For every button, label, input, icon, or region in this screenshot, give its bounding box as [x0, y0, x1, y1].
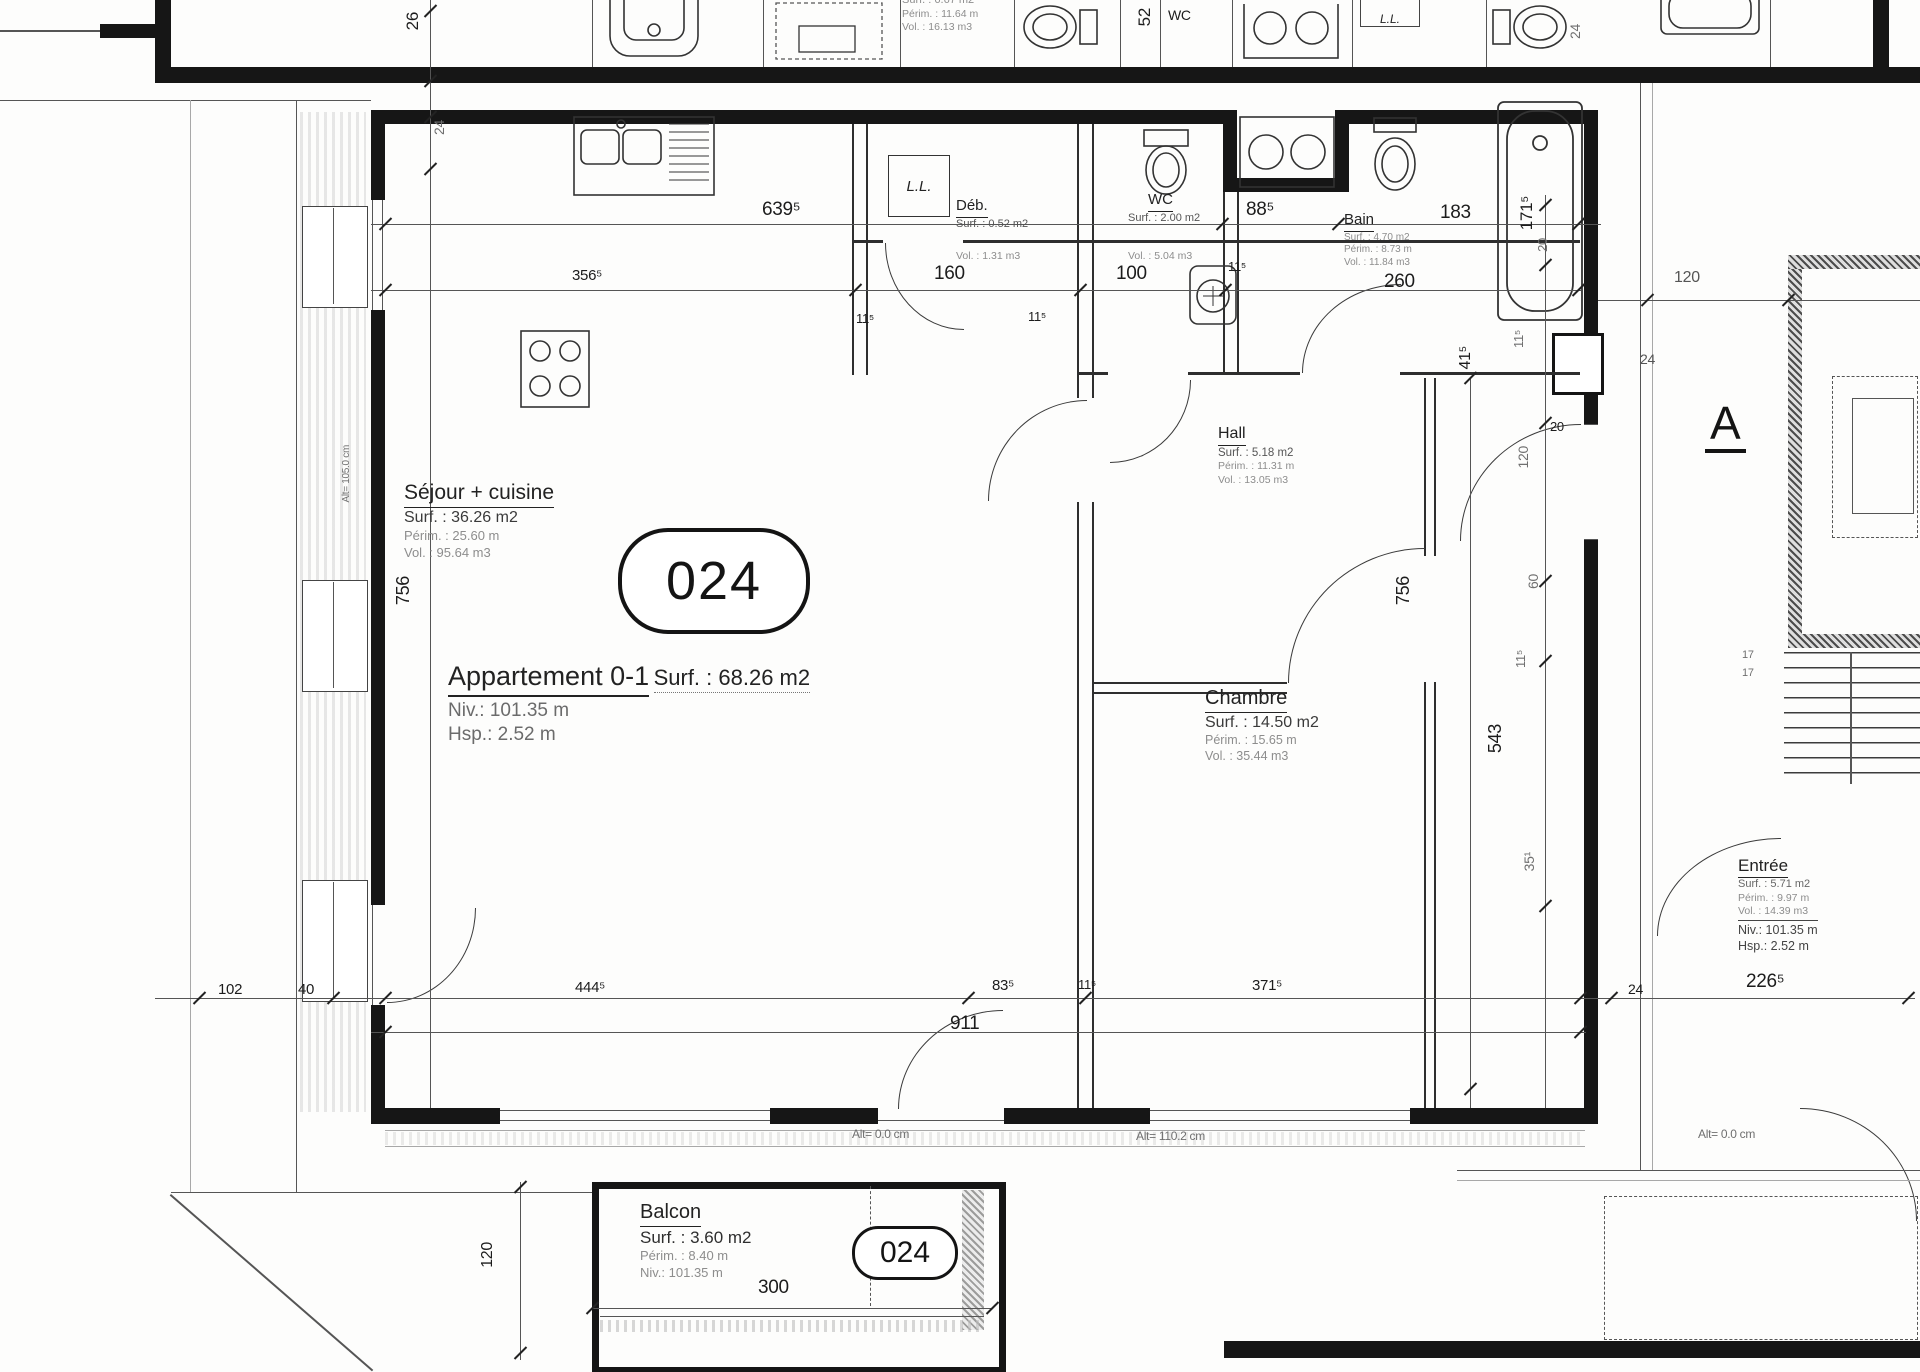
washing-machine-icon: L.L.: [888, 155, 950, 217]
room-perimeter: Périm. : 8.73 m: [1344, 244, 1412, 257]
room-name: Hall: [1218, 424, 1246, 446]
dim-label: 639⁵: [762, 200, 800, 219]
apartment-badge: 024: [618, 528, 810, 634]
dim-line: [1545, 195, 1546, 1108]
dim-label: 160: [934, 264, 965, 283]
window-line: [333, 882, 334, 998]
dim-label: 88⁵: [1246, 200, 1274, 219]
dim-label: 35¹: [1522, 852, 1536, 871]
window-frame: [500, 1120, 770, 1121]
room-perimeter: Périm. : 9.97 m: [1738, 892, 1818, 905]
hatched-wall: [1788, 634, 1920, 648]
corridor-wall: [155, 67, 1920, 83]
room-surface: Surf. : 3.60 m2: [640, 1227, 752, 1248]
facade-line: [190, 100, 191, 1192]
room-level: Niv.: 101.35 m: [1738, 923, 1818, 939]
window-frame: [500, 1110, 770, 1111]
room-label-deb-volume: Vol. : 1.31 m3: [956, 250, 1020, 263]
room-perimeter: Périm. : 11.64 m: [902, 8, 978, 21]
dim-label: 102: [218, 982, 242, 997]
room-surface: Surf. : 4.70 m2: [1344, 232, 1412, 245]
wall-segment: [100, 24, 158, 38]
room-label-neighbor: Surf. : 6.67 m2 Périm. : 11.64 m Vol. : …: [902, 0, 978, 34]
room-perimeter: Périm. : 25.60 m: [404, 528, 554, 544]
room-name: Entrée: [1738, 855, 1788, 878]
room-perimeter: Périm. : 15.65 m: [1205, 733, 1319, 749]
dim-label: 543: [1486, 724, 1504, 753]
room-label-deb: Déb. Surf. : 0.52 m2: [956, 196, 1028, 232]
sill-line: [385, 1146, 1585, 1147]
stair-count-label: 17: [1742, 668, 1754, 679]
dim-label: 756: [1394, 576, 1412, 605]
partition-sejour-hall: [1077, 124, 1079, 1108]
facade-diagonal-line: [170, 1194, 373, 1371]
room-name: WC: [1148, 191, 1173, 212]
dim-label: 371⁵: [1252, 978, 1282, 993]
sill-height-label: Alt= 0.0 cm: [852, 1128, 909, 1140]
door-arc-left-window: [387, 908, 476, 1003]
room-label-wc-volume: Vol. : 5.04 m3: [1128, 250, 1192, 263]
partition: [592, 0, 593, 67]
room-name: Bain: [1344, 211, 1374, 232]
dim-label: 24: [1568, 24, 1582, 39]
partition-hall-chambre: [1092, 682, 1287, 684]
wc-top-label: WC: [1168, 8, 1191, 22]
door-arc-chambre: [1288, 548, 1425, 683]
dim-label: 41⁵: [1458, 346, 1474, 370]
balcony-badge: 024: [852, 1226, 958, 1280]
door-opening: [371, 905, 385, 1005]
room-volume: Vol. : 11.84 m3: [1344, 257, 1412, 270]
duct-box: [1552, 333, 1604, 395]
dim-label: 24: [1640, 352, 1655, 366]
facade-line: [0, 100, 371, 101]
room-perimeter: Périm. : 11.31 m: [1218, 460, 1294, 473]
stove-icon: [520, 330, 590, 408]
sill-line: [385, 1130, 1585, 1131]
sill-height-label: Alt= 110.2 cm: [1136, 1130, 1205, 1142]
bathtub-icon: [1660, 0, 1760, 36]
partition: [1770, 0, 1771, 67]
window-frame: [878, 1120, 1004, 1121]
room-name: Séjour + cuisine: [404, 480, 554, 508]
corridor-line: [1457, 1170, 1920, 1171]
door-arc-deb: [885, 243, 964, 330]
double-sink-icon: [1239, 116, 1335, 188]
stair-rail: [1850, 652, 1852, 784]
room-surface: Surf. : 14.50 m2: [1205, 713, 1319, 733]
room-label-chambre: Chambre Surf. : 14.50 m2 Périm. : 15.65 …: [1205, 686, 1319, 764]
dim-label: 356⁵: [572, 268, 602, 283]
room-surface: Surf. : 0.52 m2: [956, 218, 1028, 232]
dim-label: 20: [1536, 238, 1549, 252]
door-arc-wc: [1110, 380, 1191, 463]
balcony-door-opening: [878, 1108, 1004, 1124]
window-line: [333, 208, 334, 304]
room-name: Balcon: [640, 1200, 701, 1227]
dim-label: 756: [394, 576, 412, 605]
apartment-top-wall: [371, 110, 1223, 124]
facade-line: [0, 30, 112, 32]
corridor-line: [1457, 1180, 1920, 1181]
dim-label: 11⁵: [1514, 650, 1527, 668]
room-label-wc: WC Surf. : 2.00 m2: [1148, 190, 1200, 226]
balcony-number: 024: [880, 1236, 930, 1270]
partition: [1120, 0, 1121, 67]
partition: [866, 124, 868, 375]
room-label-sejour: Séjour + cuisine Surf. : 36.26 m2 Périm.…: [404, 480, 554, 561]
facade-line: [171, 1192, 592, 1193]
toilet-icon: [1138, 128, 1194, 198]
door-opening: [1108, 371, 1188, 376]
corridor-line: [1640, 83, 1641, 1170]
dim-label: 100: [1116, 264, 1147, 283]
door-arc-entrance: [1460, 424, 1581, 541]
room-surface: Surf. : 5.71 m2: [1738, 878, 1818, 892]
dim-line: [520, 1182, 521, 1360]
dim-label: 444⁵: [575, 980, 605, 995]
partition: [1232, 0, 1233, 67]
room-volume: Vol. : 35.44 m3: [1205, 749, 1319, 765]
dim-label: 260: [1384, 272, 1415, 291]
dim-label: 120: [1516, 446, 1530, 468]
dim-label: 24: [432, 120, 446, 135]
double-sink-icon: [1243, 4, 1339, 60]
dim-label: 171⁵: [1518, 196, 1535, 230]
dim-label: 52: [1136, 8, 1153, 26]
washing-machine-icon: L.L.: [1360, 0, 1420, 27]
vanity-counter-icon: [775, 2, 883, 62]
partition: [1014, 0, 1015, 67]
dim-line: [1470, 378, 1471, 1108]
dim-label: 120: [1674, 270, 1700, 286]
sill-height-label: Alt= 105.0 cm: [342, 445, 352, 503]
toilet-icon: [1490, 2, 1568, 52]
entrance-door-opening: [1584, 424, 1598, 540]
stair-count-label: 17: [1742, 650, 1754, 661]
facade-line: [296, 100, 297, 1192]
room-surface: Surf. : 5.18 m2: [1218, 446, 1294, 460]
dim-label: 24: [1628, 982, 1643, 996]
dim-label: 300: [758, 1278, 789, 1297]
window-frame: [1150, 1120, 1410, 1121]
apartment-label: Appartement 0-1 Surf. : 68.26 m2 Niv.: 1…: [448, 660, 810, 746]
window-frame: [372, 200, 373, 310]
apartment-number: 024: [666, 550, 762, 612]
toilet-icon: [1022, 2, 1100, 52]
dim-label: 11⁵: [1028, 310, 1046, 323]
washing-machine-label: L.L.: [906, 178, 931, 195]
hatched-wall: [1788, 269, 1802, 648]
room-name: Chambre: [1205, 686, 1287, 713]
room-perimeter: Périm. : 8.40 m: [640, 1248, 752, 1264]
room-volume: Vol. : 16.13 m3: [902, 21, 978, 34]
dim-label: 83⁵: [992, 978, 1014, 993]
dim-label: 11⁵: [856, 312, 874, 325]
floor-plan: L.L.: [0, 0, 1920, 1372]
partition: [1486, 0, 1487, 67]
partition: [900, 0, 901, 67]
dim-label: 60: [1526, 574, 1540, 589]
bathtub-icon: [600, 0, 708, 66]
door-arc-sejour-hall: [988, 400, 1087, 501]
room-surface: Surf. : 6.67 m2: [902, 0, 978, 8]
lift-cabin: [1852, 398, 1914, 514]
sill-height-label: Alt= 0.0 cm: [1698, 1128, 1755, 1140]
washing-machine-label: L.L.: [1380, 12, 1400, 26]
partition-sejour-hall: [1092, 124, 1094, 1108]
room-volume: Vol. : 14.39 m3: [1738, 905, 1818, 921]
room-surface: Surf. : 2.00 m2: [1128, 212, 1200, 226]
room-level: Niv.: 101.35 m: [640, 1265, 752, 1281]
window: [302, 206, 368, 308]
dim-label: 11⁵: [1512, 330, 1525, 348]
dim-label: 11⁵: [1228, 260, 1246, 273]
room-height: Hsp.: 2.52 m: [1738, 939, 1818, 955]
apartment-right-wall: [1584, 110, 1598, 1124]
window-frame: [372, 905, 373, 1005]
room-label-balcon: Balcon Surf. : 3.60 m2 Périm. : 8.40 m N…: [640, 1200, 752, 1281]
room-name: Déb.: [956, 197, 988, 218]
partition: [763, 0, 764, 67]
balcony-sill-line: [600, 1316, 984, 1317]
dim-line: [1160, 0, 1161, 67]
terrace-outline: [1604, 1196, 1918, 1340]
dim-label: 26: [404, 12, 421, 30]
door-arc-bain: [1302, 284, 1401, 373]
balcony-sill-texture: [600, 1320, 984, 1332]
dim-label: 20: [1550, 420, 1564, 433]
dim-label: 226⁵: [1746, 972, 1784, 991]
apartment-height: Hsp.: 2.52 m: [448, 723, 810, 747]
dim-label: 120: [480, 1242, 496, 1268]
window-line: [333, 582, 334, 688]
partition: [852, 124, 854, 375]
staircase: [1784, 652, 1920, 784]
room-label-hall: Hall Surf. : 5.18 m2 Périm. : 11.31 m Vo…: [1218, 424, 1294, 487]
room-surface: Surf. : 36.26 m2: [404, 508, 554, 528]
notch-wall: [1335, 110, 1349, 192]
room-volume: Vol. : 13.05 m3: [1218, 474, 1294, 487]
room-volume: Vol. : 95.64 m3: [404, 545, 554, 561]
dim-label: 183: [1440, 203, 1471, 222]
kitchen-sink-icon: [573, 116, 715, 196]
balcony-hatch: [962, 1190, 984, 1330]
door-jamb: [1584, 539, 1598, 540]
room-label-entree: Entrée Surf. : 5.71 m2 Périm. : 9.97 m V…: [1738, 855, 1818, 955]
apartment-surface: Surf. : 68.26 m2: [654, 664, 811, 693]
window-frame: [1150, 1110, 1410, 1111]
sill-texture: [385, 1132, 1585, 1145]
dim-line: [592, 1308, 992, 1309]
door-jamb: [1584, 424, 1598, 425]
bottom-right-wall: [1224, 1341, 1920, 1358]
wall-segment: [1873, 0, 1889, 83]
hatched-wall: [1788, 255, 1920, 269]
dim-label: 11⁵: [1078, 978, 1096, 991]
toilet-icon: [1368, 116, 1422, 196]
window: [302, 580, 368, 692]
room-label-bain: Bain Surf. : 4.70 m2 Périm. : 8.73 m Vol…: [1344, 210, 1412, 269]
partition: [1352, 0, 1353, 67]
dim-line: [155, 998, 1915, 999]
dim-label: 911: [950, 1014, 979, 1033]
corridor-line: [1652, 83, 1653, 1170]
block-letter: A: [1705, 398, 1746, 453]
apartment-level: Niv.: 101.35 m: [448, 699, 810, 723]
dim-label: 40: [298, 982, 314, 997]
apartment-name: Appartement 0-1: [448, 660, 649, 697]
